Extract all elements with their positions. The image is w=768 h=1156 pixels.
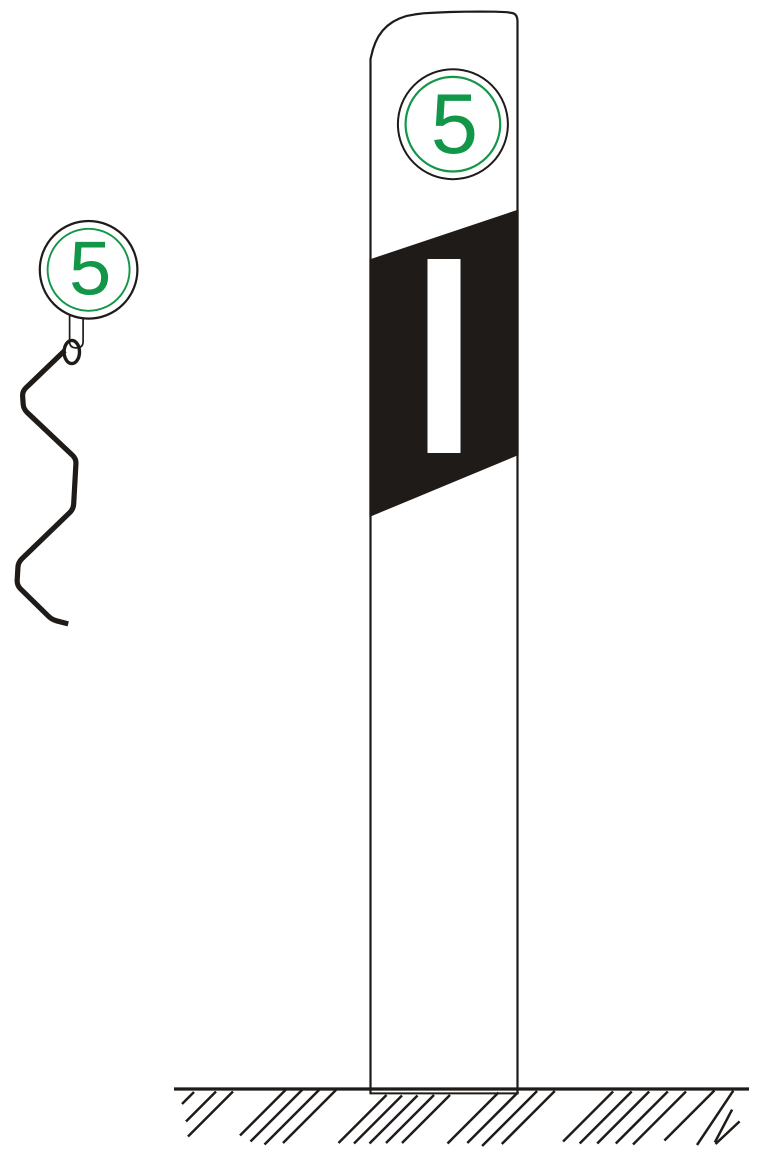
- svg-text:5: 5: [431, 77, 478, 172]
- svg-text:5: 5: [69, 226, 111, 311]
